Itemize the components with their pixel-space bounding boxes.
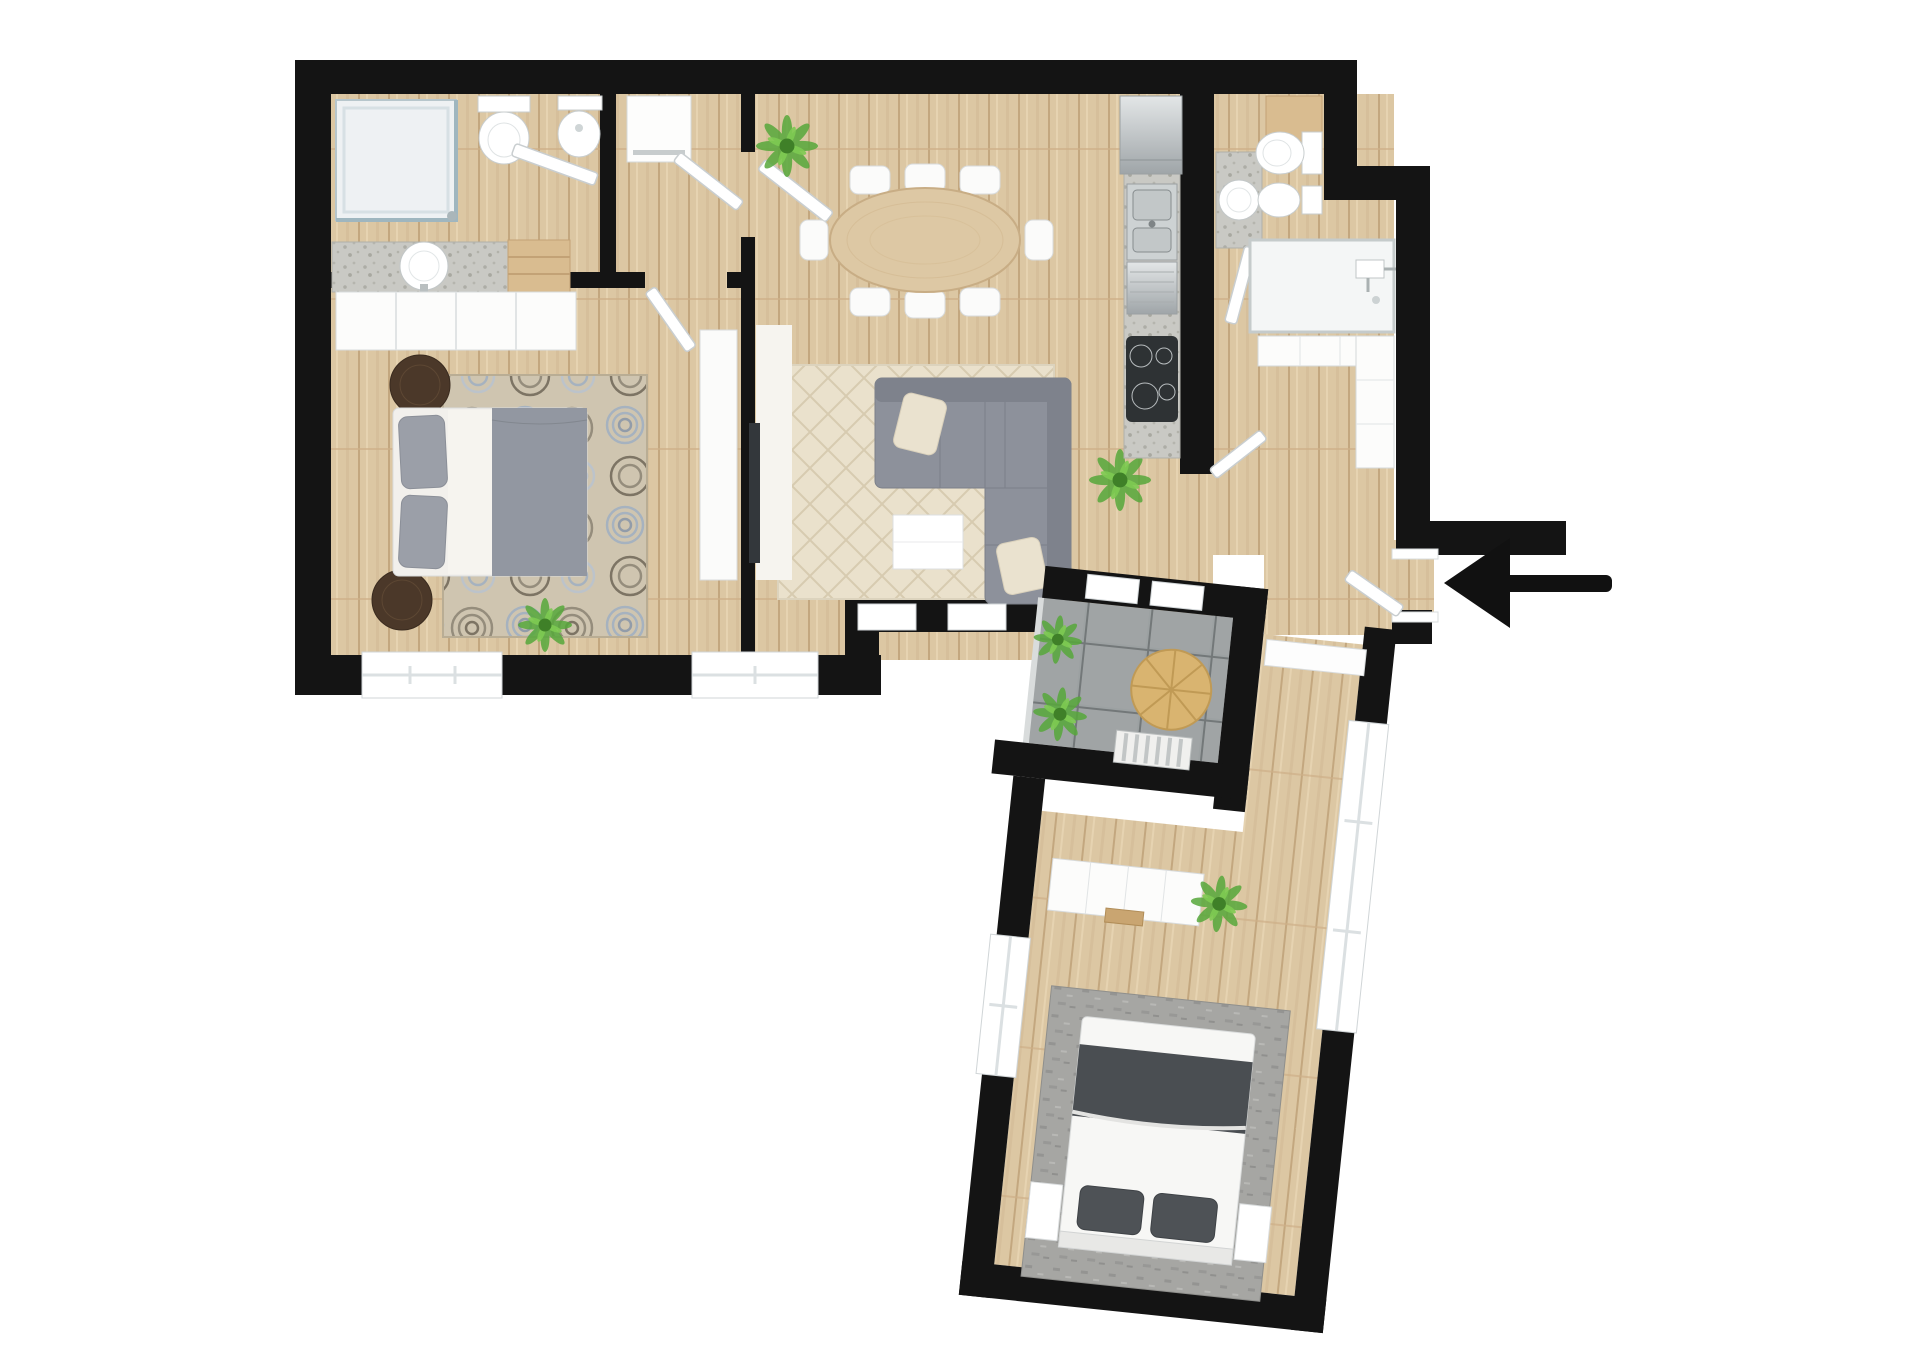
bidet-back	[1302, 186, 1322, 214]
floor-plan	[0, 0, 1920, 1357]
bed-pillow	[1076, 1185, 1144, 1235]
entry-closet-side	[1356, 336, 1394, 468]
plant	[756, 115, 818, 177]
bed-sheet	[448, 410, 492, 574]
cabinet-slot	[633, 150, 685, 155]
dishwasher	[1127, 262, 1177, 314]
wall-segment	[741, 237, 755, 272]
sink-faucet	[1149, 221, 1156, 228]
double-bed	[393, 408, 587, 576]
window-terrace	[1085, 574, 1139, 603]
round-stool	[372, 570, 432, 630]
wall-segment	[295, 60, 1357, 94]
wall-segment	[1324, 166, 1430, 200]
chair	[960, 288, 1000, 316]
bidet	[1258, 183, 1300, 217]
chair	[960, 166, 1000, 194]
toilet-tank	[1302, 132, 1322, 174]
chair	[850, 288, 890, 316]
arrow-shaft	[1498, 575, 1612, 592]
shower-hinge	[447, 211, 457, 221]
chair	[850, 166, 890, 194]
sink-unit	[1127, 184, 1177, 260]
front-door-jamb	[1392, 549, 1438, 559]
hob-surface	[1126, 336, 1178, 422]
window-bedroom	[362, 652, 502, 698]
sink-basin	[1133, 228, 1171, 252]
wall-segment	[600, 94, 616, 272]
kitchen	[1120, 96, 1182, 458]
tv-cabinet	[700, 330, 737, 580]
plant	[518, 598, 572, 652]
bidet	[558, 111, 600, 157]
bed-duvet	[492, 408, 587, 576]
nightstand	[1234, 1204, 1272, 1263]
double-bed	[1058, 1016, 1255, 1265]
nightstand	[1025, 1182, 1063, 1241]
window-terrace-wall	[858, 604, 916, 630]
shower-room	[1250, 240, 1396, 332]
oval-dining-table	[830, 188, 1020, 292]
wall-segment	[1396, 200, 1430, 555]
toilet-tank	[478, 96, 530, 112]
window-terrace-wall	[948, 604, 1006, 630]
bed-pillow	[398, 495, 448, 569]
vanity-sink	[400, 242, 448, 290]
sideboard	[756, 325, 792, 580]
window-living	[692, 652, 818, 698]
chair	[800, 220, 828, 260]
wall-tv	[749, 423, 760, 563]
sink-basin	[1133, 190, 1171, 220]
chair	[905, 290, 945, 318]
bed-pillow	[1150, 1193, 1218, 1243]
bed-pillow	[398, 415, 448, 489]
window-terrace	[1150, 581, 1204, 610]
induction-hob	[1126, 336, 1178, 422]
south-wing	[937, 563, 1402, 1334]
bidet-faucet	[575, 124, 583, 132]
wall-segment	[1180, 94, 1214, 474]
wood-cabinet	[508, 240, 570, 292]
shower-fixture	[1356, 260, 1384, 278]
walk-in-shower-floor	[1250, 240, 1394, 332]
corner-shower	[336, 100, 456, 220]
shower-drain	[1372, 296, 1380, 304]
chair	[1025, 220, 1053, 260]
fridge	[1120, 96, 1182, 174]
vanity-sink	[1219, 180, 1259, 220]
wall-segment	[741, 94, 755, 152]
round-stool	[390, 355, 450, 415]
bidet-back	[558, 96, 602, 110]
wall-segment	[295, 60, 331, 695]
